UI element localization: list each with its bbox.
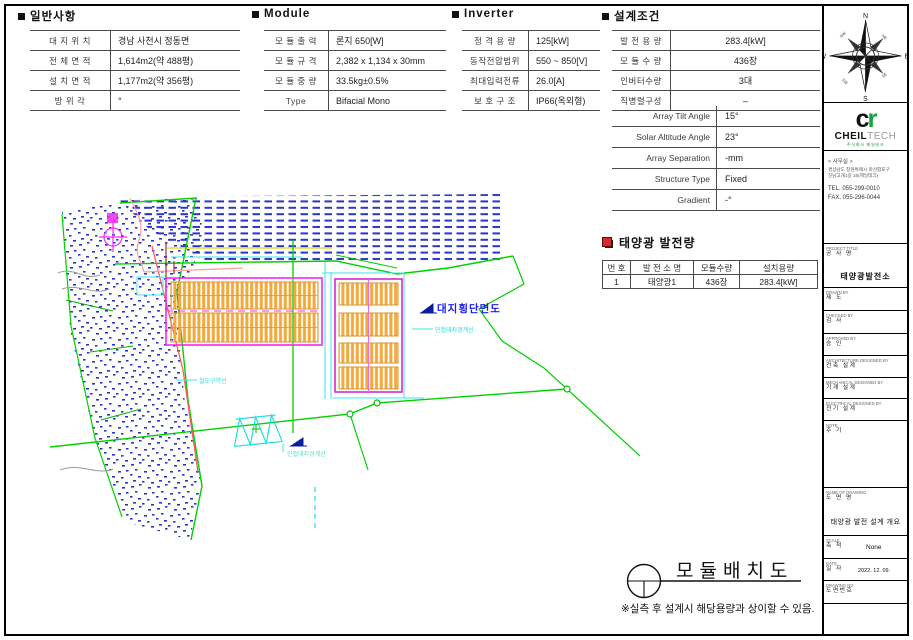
row-value: 1,614m2(약 488평) bbox=[111, 51, 240, 70]
drawing-title: 모듈배치도 bbox=[676, 560, 793, 582]
generation-cell: 태양광1 bbox=[631, 275, 694, 288]
row-value: ° bbox=[111, 91, 240, 110]
row-label: 보 호 구 조 bbox=[462, 91, 529, 110]
row-value: 경남 사천시 정동면 bbox=[111, 31, 240, 50]
block-ko-label: 공 사 명 bbox=[824, 251, 907, 258]
block-value: None bbox=[866, 544, 882, 551]
compass-n-label: N bbox=[863, 13, 868, 20]
row-value: 23° bbox=[717, 127, 820, 147]
inverter-title-text: Inverter bbox=[464, 8, 514, 20]
generation-header-cell: 발 전 소 명 bbox=[631, 261, 694, 274]
generation-table: 번 호발 전 소 명모듈수량설치용량1태양광1436장283.4[kW] bbox=[602, 260, 818, 289]
design-table: 발 전 용 량283.4[kW]모 듈 수 량436장인버터수량3대직병렬구성– bbox=[612, 30, 820, 111]
design-table-en: Array Tilt Angle15°Solar Altitude Angle2… bbox=[612, 106, 820, 211]
block-value: 2022. 12. 09. bbox=[858, 568, 890, 574]
checked-by-block: CHECKED BY검 사 bbox=[824, 310, 907, 333]
adjacent-boundary-label-lower: 인접대지경계선 bbox=[287, 450, 326, 458]
module-row: 모 듈 중 량33.5kg±0.5% bbox=[264, 71, 446, 91]
generation-header-cell: 모듈수량 bbox=[694, 261, 740, 274]
row-label: Array Tilt Angle bbox=[612, 106, 717, 126]
module-section-title: Module bbox=[252, 8, 310, 20]
block-ko-label: 검 사 bbox=[824, 318, 907, 325]
railway-zone-label: 철도구역선 bbox=[199, 377, 227, 385]
block-ko-label: 주 기 bbox=[824, 428, 907, 435]
generation-cell: 436장 bbox=[694, 275, 740, 288]
generation-data-row: 1태양광1436장283.4[kW] bbox=[603, 274, 817, 288]
design-row: Gradient-° bbox=[612, 190, 820, 211]
inverter-row: 정 격 용 량125[kW] bbox=[462, 31, 600, 51]
approved-by-block: APPROVED BY승 인 bbox=[824, 333, 907, 355]
row-value: 550 ~ 850[V] bbox=[529, 51, 600, 70]
company-logo-box: cr CHEILTECH 주식회사 제일테크 bbox=[824, 102, 907, 151]
compass-nw-label: NW bbox=[839, 30, 847, 38]
date-block: DATE일 자2022. 12. 09. bbox=[824, 558, 907, 580]
row-label: Gradient bbox=[612, 190, 717, 210]
generation-cell: 1 bbox=[603, 275, 631, 288]
design-row: Array Separation-mm bbox=[612, 148, 820, 169]
compass-sw-label: SW bbox=[841, 77, 849, 85]
inverter-table: 정 격 용 량125[kW]동작전압범위550 ~ 850[V]최대입력전류26… bbox=[462, 30, 600, 111]
module-row: 모 듈 규 격2,382 x 1,134 x 30mm bbox=[264, 51, 446, 71]
row-value: -° bbox=[717, 190, 820, 210]
note-block: NOTE주 기 bbox=[824, 420, 907, 487]
block-ko-label: 도 면 명 bbox=[824, 495, 907, 502]
pv-array-block-1 bbox=[166, 278, 322, 345]
compass-w-label: W bbox=[824, 54, 827, 61]
generation-section-title: 태양광 발전량 bbox=[602, 234, 696, 251]
module-title-text: Module bbox=[264, 8, 310, 20]
module-row: 모 듈 출 력론지 650[W] bbox=[264, 31, 446, 51]
company-caption: 주식회사 제일테크 bbox=[824, 142, 907, 148]
general-row: 방 위 각° bbox=[30, 91, 240, 111]
company-name: CHEILTECH bbox=[824, 131, 907, 142]
design-row: 발 전 용 량283.4[kW] bbox=[612, 31, 820, 51]
inverter-row: 동작전압범위550 ~ 850[V] bbox=[462, 51, 600, 71]
row-value: 33.5kg±0.5% bbox=[329, 71, 446, 90]
row-value: 3대 bbox=[671, 71, 820, 90]
general-row: 설 치 면 적1,177m2(약 356평) bbox=[30, 71, 240, 91]
general-row: 전 체 면 적1,614m2(약 488평) bbox=[30, 51, 240, 71]
cheiltech-logo-icon: cr bbox=[824, 107, 907, 131]
architecture-designed-by-block: ARCHITECTURE DESIGNED BY건축 설계 bbox=[824, 355, 907, 377]
scale-block: SCALE축 척None bbox=[824, 535, 907, 558]
drawn-by-block: DRAWN BY제 도 bbox=[824, 287, 907, 310]
block-value: 태양광발전소 bbox=[824, 271, 907, 282]
inverter-section-title: Inverter bbox=[452, 8, 514, 20]
row-label: 모 듈 중 량 bbox=[264, 71, 329, 90]
office-heading: < 사무실 > bbox=[828, 157, 907, 165]
generation-title-text: 태양광 발전량 bbox=[619, 234, 696, 251]
site-cross-section-label: 대지횡단면도 bbox=[437, 302, 501, 315]
compass-box: N E S W NE SE SW NW bbox=[824, 6, 907, 102]
generation-cell: 283.4[kW] bbox=[740, 275, 817, 288]
row-label: 동작전압범위 bbox=[462, 51, 529, 70]
row-label: 모 듈 수 량 bbox=[612, 51, 671, 70]
row-label: Type bbox=[264, 91, 329, 110]
block-ko-label: 제 도 bbox=[824, 295, 907, 302]
drawing-note: ※실측 후 설계시 해당용량과 상이할 수 있음. bbox=[621, 602, 814, 615]
design-section-title: 설계조건 bbox=[602, 8, 660, 24]
row-label: Array Separation bbox=[612, 148, 717, 168]
block-ko-label: 건축 설계 bbox=[824, 363, 907, 370]
section-marker-icon bbox=[602, 13, 609, 20]
compass-rose: N E S W NE SE SW NW bbox=[824, 6, 907, 102]
office-address-line2: 진남고개1길 16(제일테크) bbox=[828, 173, 907, 179]
block-ko-label: 승 인 bbox=[824, 341, 907, 348]
drawing-no-block: DRAWING NO도면번호 bbox=[824, 580, 907, 603]
project-title-block: PROJECT TITLE공 사 명태양광발전소 bbox=[824, 243, 907, 287]
row-value: 125[kW] bbox=[529, 31, 600, 50]
row-value: 1,177m2(약 356평) bbox=[111, 71, 240, 90]
red-cube-icon bbox=[602, 237, 614, 249]
row-label: 모 듈 출 력 bbox=[264, 31, 329, 50]
name-of-drawing-block: NAME OF DRAWING도 면 명태양광 발전 설계 개요 bbox=[824, 487, 907, 535]
row-label: 방 위 각 bbox=[30, 91, 111, 110]
block-value: 태양광 발전 설계 개요 bbox=[824, 517, 907, 527]
design-row: 모 듈 수 량436장 bbox=[612, 51, 820, 71]
row-label: 대 지 위 치 bbox=[30, 31, 111, 50]
empty-block bbox=[824, 603, 907, 630]
section-marker-icon bbox=[18, 13, 25, 20]
mechanical-designed-by-block: MECHANICAL DESIGNED BY기계 설계 bbox=[824, 377, 907, 398]
row-value: 2,382 x 1,134 x 30mm bbox=[329, 51, 446, 70]
design-row: Array Tilt Angle15° bbox=[612, 106, 820, 127]
row-value: 436장 bbox=[671, 51, 820, 70]
row-label: 전 체 면 적 bbox=[30, 51, 111, 70]
row-label: Structure Type bbox=[612, 169, 717, 189]
section-marker-icon bbox=[252, 11, 259, 18]
compass-e-label: E bbox=[905, 54, 908, 61]
row-label: Solar Altitude Angle bbox=[612, 127, 717, 147]
row-value: 15° bbox=[717, 106, 820, 126]
row-label: 모 듈 규 격 bbox=[264, 51, 329, 70]
row-label: 발 전 용 량 bbox=[612, 31, 671, 50]
row-label: 설 치 면 적 bbox=[30, 71, 111, 90]
inverter-row: 최대입력전류26.0[A] bbox=[462, 71, 600, 91]
title-block-sections: PROJECT TITLE공 사 명태양광발전소DRAWN BY제 도CHECK… bbox=[824, 243, 907, 630]
row-value: Bifacial Mono bbox=[329, 91, 446, 110]
design-row: 인버터수량3대 bbox=[612, 71, 820, 91]
block-ko-label: 전기 설계 bbox=[824, 406, 907, 413]
row-value: IP66(옥외형) bbox=[529, 91, 600, 110]
general-table: 대 지 위 치경남 사천시 정동면전 체 면 적1,614m2(약 488평)설… bbox=[30, 30, 240, 111]
office-fax: FAX. 055-296-0044 bbox=[828, 194, 907, 203]
generation-header-cell: 번 호 bbox=[603, 261, 631, 274]
fence-zigzag-symbol bbox=[232, 415, 283, 447]
adjacent-boundary-label-upper: 인접대지경계선 bbox=[435, 326, 474, 334]
pv-array-block-2 bbox=[335, 279, 402, 392]
row-label: 최대입력전류 bbox=[462, 71, 529, 90]
design-row: Structure TypeFixed bbox=[612, 169, 820, 190]
block-ko-label: 기계 설계 bbox=[824, 385, 907, 392]
office-tel: TEL. 055-299-0010 bbox=[828, 185, 907, 194]
row-value: 26.0[A] bbox=[529, 71, 600, 90]
row-value: Fixed bbox=[717, 169, 820, 189]
generation-header-row: 번 호발 전 소 명모듈수량설치용량 bbox=[603, 261, 817, 274]
row-value: -mm bbox=[717, 148, 820, 168]
design-row: Solar Altitude Angle23° bbox=[612, 127, 820, 148]
general-title-text: 일반사항 bbox=[30, 8, 76, 24]
block-ko-label: 도면번호 bbox=[824, 588, 907, 595]
row-value: 론지 650[W] bbox=[329, 31, 446, 50]
electrical-designed-by-block: ELECTRICAL DESIGNED BY전기 설계 bbox=[824, 398, 907, 420]
section-marker-icon bbox=[452, 11, 459, 18]
generation-header-cell: 설치용량 bbox=[740, 261, 817, 274]
design-title-text: 설계조건 bbox=[614, 8, 660, 24]
module-table: 모 듈 출 력론지 650[W]모 듈 규 격2,382 x 1,134 x 3… bbox=[264, 30, 446, 111]
row-value: 283.4[kW] bbox=[671, 31, 820, 50]
general-row: 대 지 위 치경남 사천시 정동면 bbox=[30, 31, 240, 51]
row-label: 정 격 용 량 bbox=[462, 31, 529, 50]
general-section-title: 일반사항 bbox=[18, 8, 76, 24]
row-label: 인버터수량 bbox=[612, 71, 671, 90]
inverter-row: 보 호 구 조IP66(옥외형) bbox=[462, 91, 600, 111]
module-row: TypeBifacial Mono bbox=[264, 91, 446, 111]
office-contact-box: < 사무실 > 경상남도 창원특례시 마산합포구 진남고개1길 16(제일테크)… bbox=[824, 150, 907, 243]
